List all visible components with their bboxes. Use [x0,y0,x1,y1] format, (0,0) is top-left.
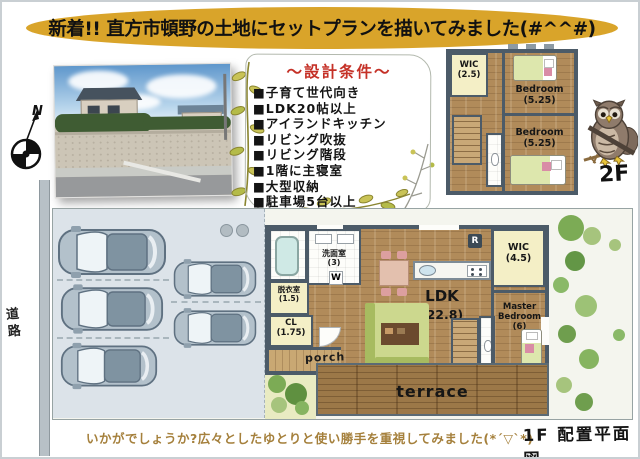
closet-room: CL (1.75) [269,315,313,347]
master-bedroom: Master Bedroom (6) [494,290,545,371]
floor2-wic-size: (2.5) [458,70,481,80]
tv-board [381,323,419,345]
bed [510,155,566,185]
floor2-bedroom-bottom-label: Bedroom (5.25) [505,128,574,150]
bush [613,329,625,341]
condition-item: ■アイランドキッチン [253,116,425,132]
kitchen-sink [419,265,436,276]
wall [505,113,574,116]
bush [575,295,597,317]
washer-label: W [331,273,341,283]
terrace-deck: terrace [316,363,549,416]
bush [558,215,584,241]
floor2-bedroom-bottom-size: (5.25) [523,138,555,149]
washroom-size: (3) [328,258,341,267]
flyer-page: 新着!! 直方市頓野の土地にセットプランを描いてみました(#^^#) N [0,0,640,459]
compass-icon: N [8,102,52,174]
photo-window [108,105,120,114]
living-rug [365,303,429,367]
board-detail [397,328,405,334]
condition-item: ■子育て世代向き [253,85,425,101]
floor2-bedroom-top-name: Bedroom [515,84,563,95]
parking-divider [57,337,169,339]
footer-comment: いかがでしょうか?広々としたゆとりと使い勝手を重視してみました(*´▽`*) [86,428,534,447]
bush [609,239,621,251]
condition-item: ■LDK20帖以上 [253,101,425,117]
kitchen-window-gap [419,225,459,230]
road-label: 道路 [0,306,22,342]
bush [579,349,599,369]
washroom: 洗面室 (3) W [307,229,361,285]
closet-name: CL [285,318,297,328]
parked-car [173,306,257,350]
floor1-house: 洗面室 (3) W 脱衣室 (1.5) CL (1.75) [265,225,549,375]
conditions-title: ～設計条件～ [253,60,425,82]
bath-room [269,229,307,281]
vent-mark [526,44,536,49]
board-detail [385,328,393,334]
washroom-name: 洗面室 [322,249,346,258]
dining-chair [397,288,407,296]
floor1-wic-name: WIC [508,242,529,253]
site-plot: 洗面室 (3) W 脱衣室 (1.5) CL (1.75) [52,208,633,420]
parked-car [60,342,158,390]
conditions-panel: ～設計条件～ ■子育て世代向き■LDK20帖以上■アイランドキッチン■リビング吹… [253,60,425,210]
terrace-label: terrace [318,382,547,401]
floor2-plan: WIC (2.5) Bedroom (5.25) Bedroom (5.25) [446,49,578,195]
bush [583,227,601,245]
floor2-stairs [452,115,482,165]
bathtub [275,236,299,276]
bush [268,375,286,393]
title-text: 新着!! 直方市頓野の土地にセットプランを描いてみました(#^^#) [48,15,595,41]
parking-divider [57,279,169,281]
dining-table [379,260,409,286]
floor1-plan-label: 1F 配置平面図 [523,420,639,459]
photo-hedge [143,116,231,130]
vent-mark [544,44,554,49]
dining-chair [381,251,391,259]
round-planter [236,224,249,237]
bed [513,55,557,81]
floor2-wic-room: WIC (2.5) [450,53,488,97]
condition-item: ■1階に主寝室 [253,163,425,179]
parking-area [53,209,265,418]
bush [556,377,572,393]
fridge-label: R [472,236,479,246]
bush [295,401,309,415]
condition-item: ■大型収納 [253,179,425,195]
ldk-name: LDK [425,287,459,305]
bush [565,251,585,271]
vent-mark [508,44,518,49]
fridge-badge: R [468,234,482,248]
dining-chair [381,288,391,296]
stove [467,265,487,277]
dining-chair [397,251,407,259]
garden-patch [265,371,316,419]
bush [558,325,576,343]
floor2-toilet-room [486,133,503,187]
washing-machine: W [329,271,343,285]
floor1-wic-room: WIC (4.5) [494,229,545,287]
toilet [491,153,499,166]
road [39,180,50,456]
photo-road [56,175,232,197]
bush [271,397,287,413]
title-banner: 新着!! 直方市頓野の土地にセットプランを描いてみました(#^^#) [26,7,618,49]
dressing-size: (1.5) [279,294,299,303]
floor1-wic-size: (4.5) [506,253,532,264]
land-photo [53,63,233,198]
floor2-label: 2F [598,161,630,188]
condition-item: ■リビング階段 [253,147,425,163]
entrance-door-swing [319,327,341,347]
bush [553,277,569,293]
dressing-room: 脱衣室 (1.5) [269,281,309,315]
island-kitchen-counter [413,261,491,280]
master-bedroom-name: Master Bedroom [498,302,541,322]
closet-size: (1.75) [277,328,306,338]
condition-item: ■リビング吹抜 [253,132,425,148]
floor2-bedroom-top-size: (5.25) [523,95,555,106]
sink [337,234,354,244]
parked-car [57,226,167,278]
photo-window [87,105,99,114]
parked-car [173,256,257,302]
round-planter [220,224,233,237]
floor2-bedroom-top-label: Bedroom (5.25) [505,85,574,107]
sink [315,234,332,244]
floor2-wic-name: WIC [460,60,479,70]
sofa [365,303,375,367]
bush [575,393,593,411]
conditions-list: ■子育て世代向き■LDK20帖以上■アイランドキッチン■リビング吹抜■リビング階… [253,85,425,210]
floor2-bedroom-bottom-name: Bedroom [515,127,563,138]
parked-car [60,284,164,334]
